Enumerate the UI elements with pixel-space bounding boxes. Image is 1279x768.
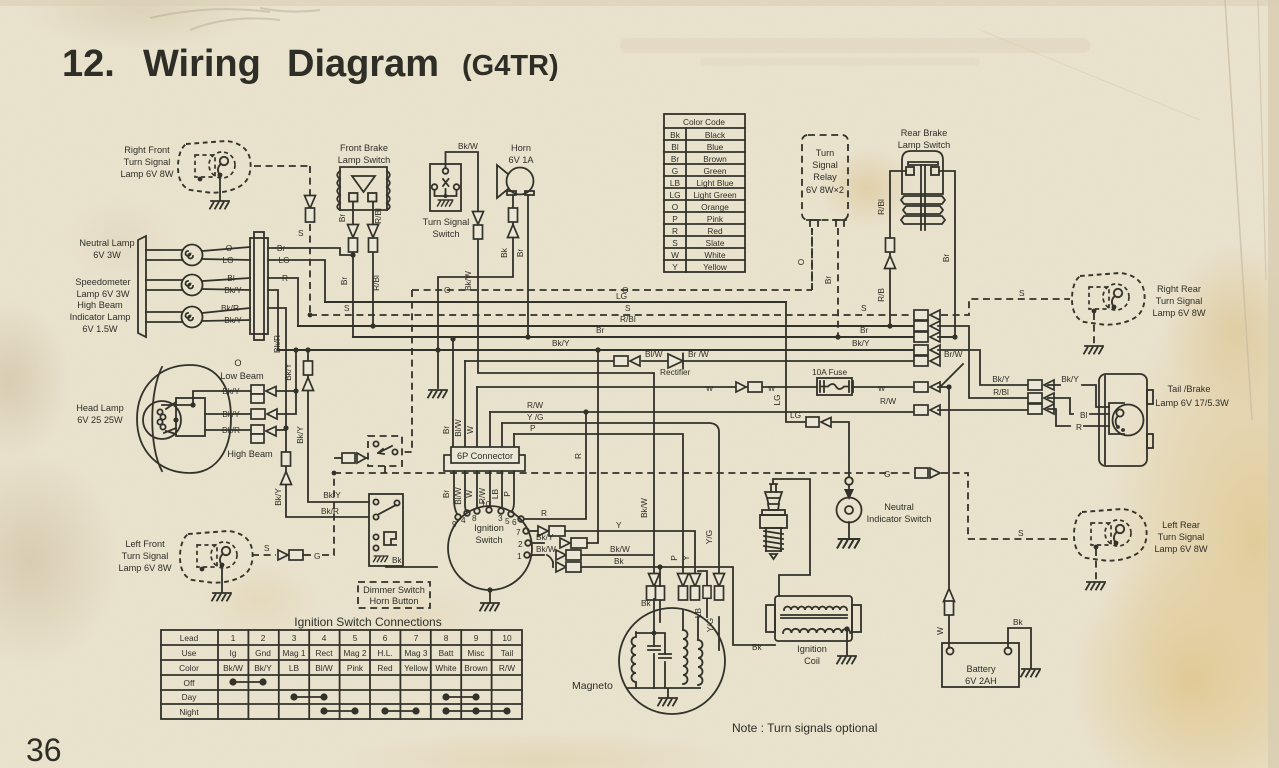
- svg-text:6V 1A: 6V 1A: [508, 155, 534, 165]
- svg-text:Low Beam: Low Beam: [220, 371, 264, 381]
- svg-text:White: White: [435, 663, 457, 673]
- svg-text:Mag 2: Mag 2: [343, 648, 366, 658]
- svg-text:Bl/W: Bl/W: [645, 349, 663, 359]
- svg-text:Red: Red: [377, 663, 393, 673]
- svg-text:R/W: R/W: [499, 663, 515, 673]
- svg-text:Lamp 6V 8W: Lamp 6V 8W: [118, 563, 171, 573]
- svg-text:12.: 12.: [62, 43, 115, 85]
- svg-text:6: 6: [512, 517, 517, 527]
- svg-text:Gnd: Gnd: [255, 648, 271, 658]
- svg-text:Red: Red: [707, 226, 723, 236]
- svg-text:(G4TR): (G4TR): [462, 50, 559, 82]
- svg-text:Br: Br: [823, 276, 833, 285]
- svg-text:Mag 1: Mag 1: [282, 648, 305, 658]
- svg-text:Br: Br: [441, 490, 451, 499]
- svg-text:Diagram: Diagram: [287, 43, 439, 85]
- svg-text:G: G: [314, 551, 320, 561]
- svg-text:Yellow: Yellow: [404, 663, 429, 673]
- svg-text:Relay: Relay: [813, 172, 837, 182]
- svg-text:7: 7: [516, 527, 521, 537]
- svg-text:O: O: [226, 243, 233, 253]
- svg-text:Bk: Bk: [752, 642, 763, 652]
- svg-text:Bk/Y: Bk/Y: [323, 490, 341, 500]
- svg-text:Dimmer Switch: Dimmer Switch: [363, 585, 425, 595]
- svg-text:R/W: R/W: [880, 396, 896, 406]
- svg-text:Bl: Bl: [671, 142, 679, 152]
- svg-text:3: 3: [292, 633, 297, 643]
- svg-text:Lamp 6V 17/5.3W: Lamp 6V 17/5.3W: [1155, 398, 1229, 408]
- svg-text:W: W: [706, 384, 714, 393]
- svg-text:Note : Turn signals optional: Note : Turn signals optional: [732, 721, 877, 735]
- svg-text:6V 8W×2: 6V 8W×2: [806, 185, 844, 195]
- svg-text:5: 5: [353, 633, 358, 643]
- svg-text:Bk: Bk: [1013, 617, 1024, 627]
- svg-text:Br /W: Br /W: [688, 349, 709, 359]
- svg-text:Misc: Misc: [467, 648, 484, 658]
- svg-text:Brown: Brown: [464, 663, 488, 673]
- svg-text:6V 2AH: 6V 2AH: [965, 676, 997, 686]
- svg-text:Bl: Bl: [227, 273, 235, 283]
- svg-text:White: White: [704, 250, 726, 260]
- svg-text:Y: Y: [672, 262, 678, 272]
- svg-text:S: S: [298, 228, 304, 238]
- svg-text:Bk/Y: Bk/Y: [224, 285, 242, 295]
- svg-text:Bk/R: Bk/R: [221, 303, 239, 313]
- svg-text:8: 8: [444, 633, 449, 643]
- svg-text:8: 8: [472, 513, 477, 523]
- svg-text:Rectifier: Rectifier: [660, 367, 691, 377]
- svg-text:R: R: [573, 453, 583, 459]
- svg-text:W: W: [768, 384, 776, 393]
- svg-text:Turn Signal: Turn Signal: [1158, 532, 1205, 542]
- svg-text:Head Lamp: Head Lamp: [76, 403, 124, 413]
- svg-text:Wiring: Wiring: [143, 43, 261, 85]
- svg-text:Lamp 6V 3W: Lamp 6V 3W: [76, 289, 129, 299]
- svg-text:6: 6: [383, 633, 388, 643]
- svg-text:Bk/Y: Bk/Y: [992, 374, 1010, 384]
- svg-text:S: S: [861, 303, 867, 313]
- svg-text:Switch: Switch: [475, 535, 502, 545]
- svg-text:Y /G: Y /G: [527, 412, 543, 422]
- svg-text:Rect: Rect: [315, 648, 333, 658]
- svg-text:Green: Green: [703, 166, 726, 176]
- svg-text:Neutral Lamp: Neutral Lamp: [79, 238, 134, 248]
- svg-text:Lamp 6V 8W: Lamp 6V 8W: [1154, 544, 1207, 554]
- svg-text:Y: Y: [616, 520, 622, 530]
- svg-text:Right Front: Right Front: [124, 145, 170, 155]
- svg-text:Blue: Blue: [707, 142, 724, 152]
- svg-text:Bl/W: Bl/W: [315, 663, 333, 673]
- svg-text:Y: Y: [681, 555, 691, 561]
- svg-text:LB: LB: [693, 607, 703, 618]
- svg-text:Bk: Bk: [670, 130, 681, 140]
- svg-text:Bk: Bk: [614, 556, 625, 566]
- svg-text:Horn: Horn: [511, 143, 531, 153]
- svg-text:Color Code: Color Code: [683, 117, 725, 127]
- svg-text:Turn: Turn: [816, 148, 835, 158]
- svg-text:Bk/W: Bk/W: [610, 544, 630, 554]
- svg-text:LG: LG: [222, 255, 233, 265]
- svg-text:O: O: [234, 358, 241, 368]
- svg-text:R/Bl: R/Bl: [876, 199, 886, 215]
- svg-text:Bk/Y: Bk/Y: [295, 426, 305, 444]
- svg-text:Ignition: Ignition: [474, 523, 504, 533]
- svg-text:Br: Br: [941, 254, 951, 263]
- svg-text:Tail /Brake: Tail /Brake: [1168, 384, 1211, 394]
- svg-text:R/Bl: R/Bl: [620, 314, 636, 324]
- svg-text:High Beam: High Beam: [227, 449, 273, 459]
- svg-text:S: S: [625, 303, 631, 313]
- svg-text:G: G: [884, 469, 890, 479]
- svg-text:Yellow: Yellow: [703, 262, 728, 272]
- svg-text:R/Bl: R/Bl: [993, 387, 1009, 397]
- svg-text:Indicator Switch: Indicator Switch: [867, 514, 932, 524]
- svg-text:2: 2: [518, 539, 523, 549]
- svg-text:Batt: Batt: [439, 648, 454, 658]
- svg-text:Magneto: Magneto: [572, 680, 613, 692]
- svg-text:Light Blue: Light Blue: [697, 178, 734, 188]
- svg-text:Bk/Y: Bk/Y: [283, 363, 293, 381]
- svg-text:LB: LB: [289, 663, 300, 673]
- svg-text:S: S: [1018, 528, 1024, 538]
- svg-text:Ignition Switch Connections: Ignition Switch Connections: [294, 615, 441, 629]
- svg-text:R: R: [672, 226, 678, 236]
- svg-text:Bk: Bk: [641, 598, 652, 608]
- svg-text:Lead: Lead: [180, 633, 199, 643]
- svg-text:R/Bl: R/Bl: [373, 208, 383, 224]
- svg-text:Pink: Pink: [707, 214, 724, 224]
- svg-text:9: 9: [452, 519, 457, 529]
- svg-text:Bl/W: Bl/W: [453, 419, 463, 437]
- svg-text:Speedometer: Speedometer: [75, 277, 130, 287]
- svg-text:Left Rear: Left Rear: [1162, 520, 1200, 530]
- svg-text:Brown: Brown: [703, 154, 727, 164]
- svg-text:Orange: Orange: [701, 202, 729, 212]
- svg-text:Bk/W: Bk/W: [639, 498, 649, 518]
- svg-text:Bk: Bk: [499, 247, 509, 258]
- svg-text:Use: Use: [182, 648, 197, 658]
- svg-text:Neutral: Neutral: [884, 502, 914, 512]
- svg-text:4: 4: [322, 633, 327, 643]
- svg-text:6V 1.5W: 6V 1.5W: [82, 324, 118, 334]
- svg-text:O: O: [796, 258, 806, 265]
- svg-text:O: O: [672, 202, 679, 212]
- svg-text:Bk/R: Bk/R: [321, 506, 339, 516]
- svg-text:Switch: Switch: [432, 229, 459, 239]
- svg-text:Br: Br: [671, 154, 680, 164]
- svg-text:Ignition: Ignition: [797, 644, 827, 654]
- svg-text:LG: LG: [669, 190, 680, 200]
- svg-text:Lamp 6V 8W: Lamp 6V 8W: [120, 169, 173, 179]
- svg-text:R/Bl: R/Bl: [371, 275, 381, 291]
- svg-text:1: 1: [517, 551, 522, 561]
- svg-text:Color: Color: [179, 663, 199, 673]
- svg-text:R/W: R/W: [527, 400, 543, 410]
- svg-text:2: 2: [261, 633, 266, 643]
- svg-text:Bk/Y: Bk/Y: [254, 663, 272, 673]
- svg-text:O: O: [444, 285, 451, 295]
- svg-text:G: G: [672, 166, 678, 176]
- svg-text:Turn Signal: Turn Signal: [124, 157, 171, 167]
- svg-text:S: S: [1019, 288, 1025, 298]
- svg-text:Bl: Bl: [1080, 410, 1088, 420]
- svg-text:Horn Button: Horn Button: [369, 596, 418, 606]
- svg-text:36: 36: [26, 732, 62, 768]
- svg-text:Bk/Y: Bk/Y: [552, 338, 570, 348]
- svg-text:Lamp Switch: Lamp Switch: [898, 140, 951, 150]
- svg-text:Black: Black: [705, 130, 726, 140]
- svg-text:Br: Br: [860, 325, 869, 335]
- svg-text:R: R: [1076, 422, 1082, 432]
- svg-text:Light Green: Light Green: [693, 190, 737, 200]
- svg-text:LB: LB: [490, 488, 500, 499]
- svg-text:Ig: Ig: [230, 648, 237, 658]
- svg-text:Br: Br: [596, 325, 605, 335]
- svg-text:S: S: [672, 238, 678, 248]
- svg-text:Bk/Y: Bk/Y: [536, 532, 554, 542]
- svg-text:P: P: [669, 555, 679, 561]
- svg-text:10: 10: [481, 499, 491, 509]
- svg-text:Bk/Y: Bk/Y: [222, 409, 240, 419]
- svg-text:Bk/W: Bk/W: [536, 544, 556, 554]
- svg-text:Right Rear: Right Rear: [1157, 284, 1201, 294]
- svg-text:Turn Signal: Turn Signal: [423, 217, 470, 227]
- svg-text:Br: Br: [339, 277, 349, 286]
- svg-text:Front Brake: Front Brake: [340, 143, 388, 153]
- svg-text:Bk/W: Bk/W: [223, 663, 243, 673]
- svg-text:Indicator Lamp: Indicator Lamp: [70, 312, 131, 322]
- svg-text:H.L.: H.L.: [377, 648, 392, 658]
- svg-text:3: 3: [498, 513, 503, 523]
- svg-text:High Beam: High Beam: [77, 300, 123, 310]
- svg-text:P: P: [672, 214, 678, 224]
- svg-text:Bk/W: Bk/W: [463, 271, 473, 291]
- svg-text:10: 10: [502, 633, 512, 643]
- svg-text:Bl/W: Bl/W: [453, 487, 463, 505]
- svg-text:Bk/Y: Bk/Y: [1061, 374, 1079, 384]
- svg-text:Bk/R: Bk/R: [222, 425, 240, 435]
- svg-text:6V 3W: 6V 3W: [93, 250, 121, 260]
- svg-text:W: W: [465, 426, 475, 434]
- svg-text:Mag 3: Mag 3: [404, 648, 427, 658]
- svg-text:Left Front: Left Front: [125, 539, 165, 549]
- svg-text:Bk/Y: Bk/Y: [852, 338, 870, 348]
- svg-text:6P Connector: 6P Connector: [457, 451, 513, 461]
- svg-text:S: S: [344, 303, 350, 313]
- svg-text:Slate: Slate: [706, 238, 725, 248]
- svg-text:W: W: [464, 490, 474, 498]
- svg-text:P: P: [530, 423, 536, 433]
- svg-text:Off: Off: [184, 678, 196, 688]
- svg-text:Lamp 6V 8W: Lamp 6V 8W: [1152, 308, 1205, 318]
- svg-text:Bk: Bk: [392, 555, 403, 565]
- svg-text:LG: LG: [790, 410, 801, 420]
- svg-text:4: 4: [461, 515, 466, 525]
- svg-text:W: W: [671, 250, 679, 260]
- svg-text:Bk/W: Bk/W: [458, 141, 478, 151]
- svg-text:P: P: [502, 491, 512, 497]
- svg-text:Night: Night: [179, 707, 199, 717]
- svg-text:LB: LB: [670, 178, 681, 188]
- svg-text:Bk/Y: Bk/Y: [273, 488, 283, 506]
- svg-text:S: S: [264, 543, 270, 553]
- svg-text:Br: Br: [441, 426, 451, 435]
- svg-text:10A Fuse: 10A Fuse: [812, 367, 847, 377]
- svg-text:LG: LG: [616, 291, 627, 301]
- svg-text:R: R: [541, 508, 547, 518]
- svg-text:9: 9: [474, 633, 479, 643]
- svg-text:Br: Br: [515, 249, 525, 258]
- svg-text:Rear Brake: Rear Brake: [901, 128, 947, 138]
- svg-text:W: W: [878, 384, 886, 393]
- svg-text:Signal: Signal: [812, 160, 838, 170]
- svg-text:7: 7: [414, 633, 419, 643]
- svg-text:Br: Br: [337, 214, 347, 223]
- svg-text:Pink: Pink: [347, 663, 364, 673]
- svg-text:Y/G: Y/G: [704, 530, 714, 544]
- svg-text:Turn Signal: Turn Signal: [1156, 296, 1203, 306]
- svg-text:Tail: Tail: [501, 648, 514, 658]
- svg-text:Turn Signal: Turn Signal: [122, 551, 169, 561]
- svg-text:Bk/Y: Bk/Y: [222, 386, 240, 396]
- svg-text:Lamp Switch: Lamp Switch: [338, 155, 391, 165]
- svg-text:Bk/Y: Bk/Y: [224, 315, 242, 325]
- svg-text:Coil: Coil: [804, 656, 820, 666]
- svg-text:Day: Day: [182, 692, 198, 702]
- svg-text:LG: LG: [772, 394, 782, 405]
- svg-text:W: W: [935, 627, 945, 635]
- svg-text:5: 5: [505, 516, 510, 526]
- svg-text:6V 25 25W: 6V 25 25W: [77, 415, 123, 425]
- svg-text:Battery: Battery: [966, 664, 996, 674]
- svg-text:R/B: R/B: [876, 288, 886, 302]
- svg-text:1: 1: [231, 633, 236, 643]
